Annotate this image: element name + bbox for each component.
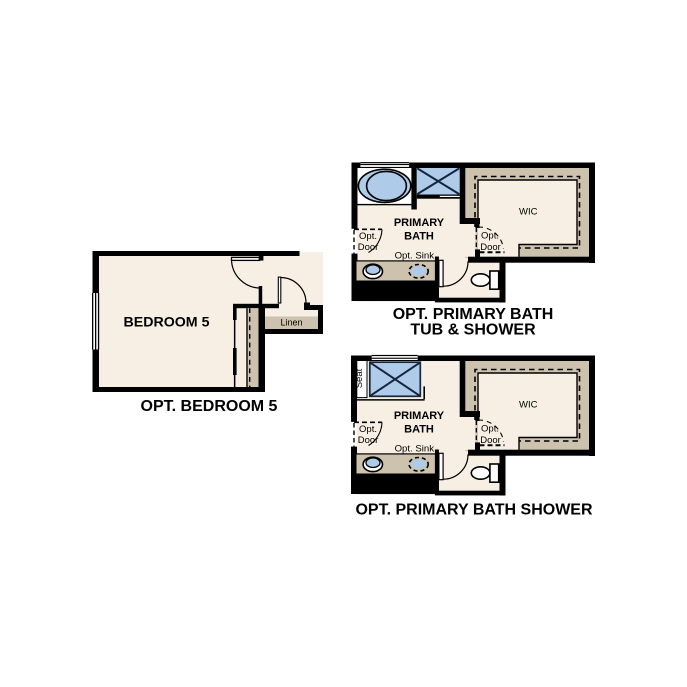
svg-text:OPT. PRIMARY BATH: OPT. PRIMARY BATH bbox=[393, 306, 554, 323]
svg-text:Opt.: Opt. bbox=[359, 424, 377, 435]
svg-text:PRIMARY: PRIMARY bbox=[394, 217, 445, 229]
svg-text:BATH: BATH bbox=[404, 423, 434, 435]
svg-text:Door: Door bbox=[480, 242, 501, 253]
svg-text:Opt.: Opt. bbox=[481, 231, 499, 242]
svg-text:PRIMARY: PRIMARY bbox=[394, 410, 445, 422]
svg-text:Door: Door bbox=[358, 242, 379, 253]
svg-text:Opt. Sink: Opt. Sink bbox=[395, 250, 435, 261]
svg-text:BEDROOM 5: BEDROOM 5 bbox=[124, 315, 210, 331]
svg-text:BATH: BATH bbox=[404, 230, 434, 242]
svg-text:OPT. BEDROOM 5: OPT. BEDROOM 5 bbox=[141, 398, 278, 415]
svg-text:WIC: WIC bbox=[519, 399, 538, 410]
svg-text:Door: Door bbox=[358, 435, 379, 446]
svg-text:Opt.: Opt. bbox=[359, 231, 377, 242]
svg-text:Linen: Linen bbox=[280, 318, 302, 328]
svg-text:Door: Door bbox=[480, 435, 501, 446]
svg-text:Opt.: Opt. bbox=[481, 424, 499, 435]
svg-text:Opt. Sink: Opt. Sink bbox=[395, 443, 435, 454]
svg-text:WIC: WIC bbox=[519, 206, 538, 217]
svg-text:OPT. PRIMARY BATH SHOWER: OPT. PRIMARY BATH SHOWER bbox=[355, 502, 592, 519]
svg-text:TUB & SHOWER: TUB & SHOWER bbox=[410, 321, 536, 338]
